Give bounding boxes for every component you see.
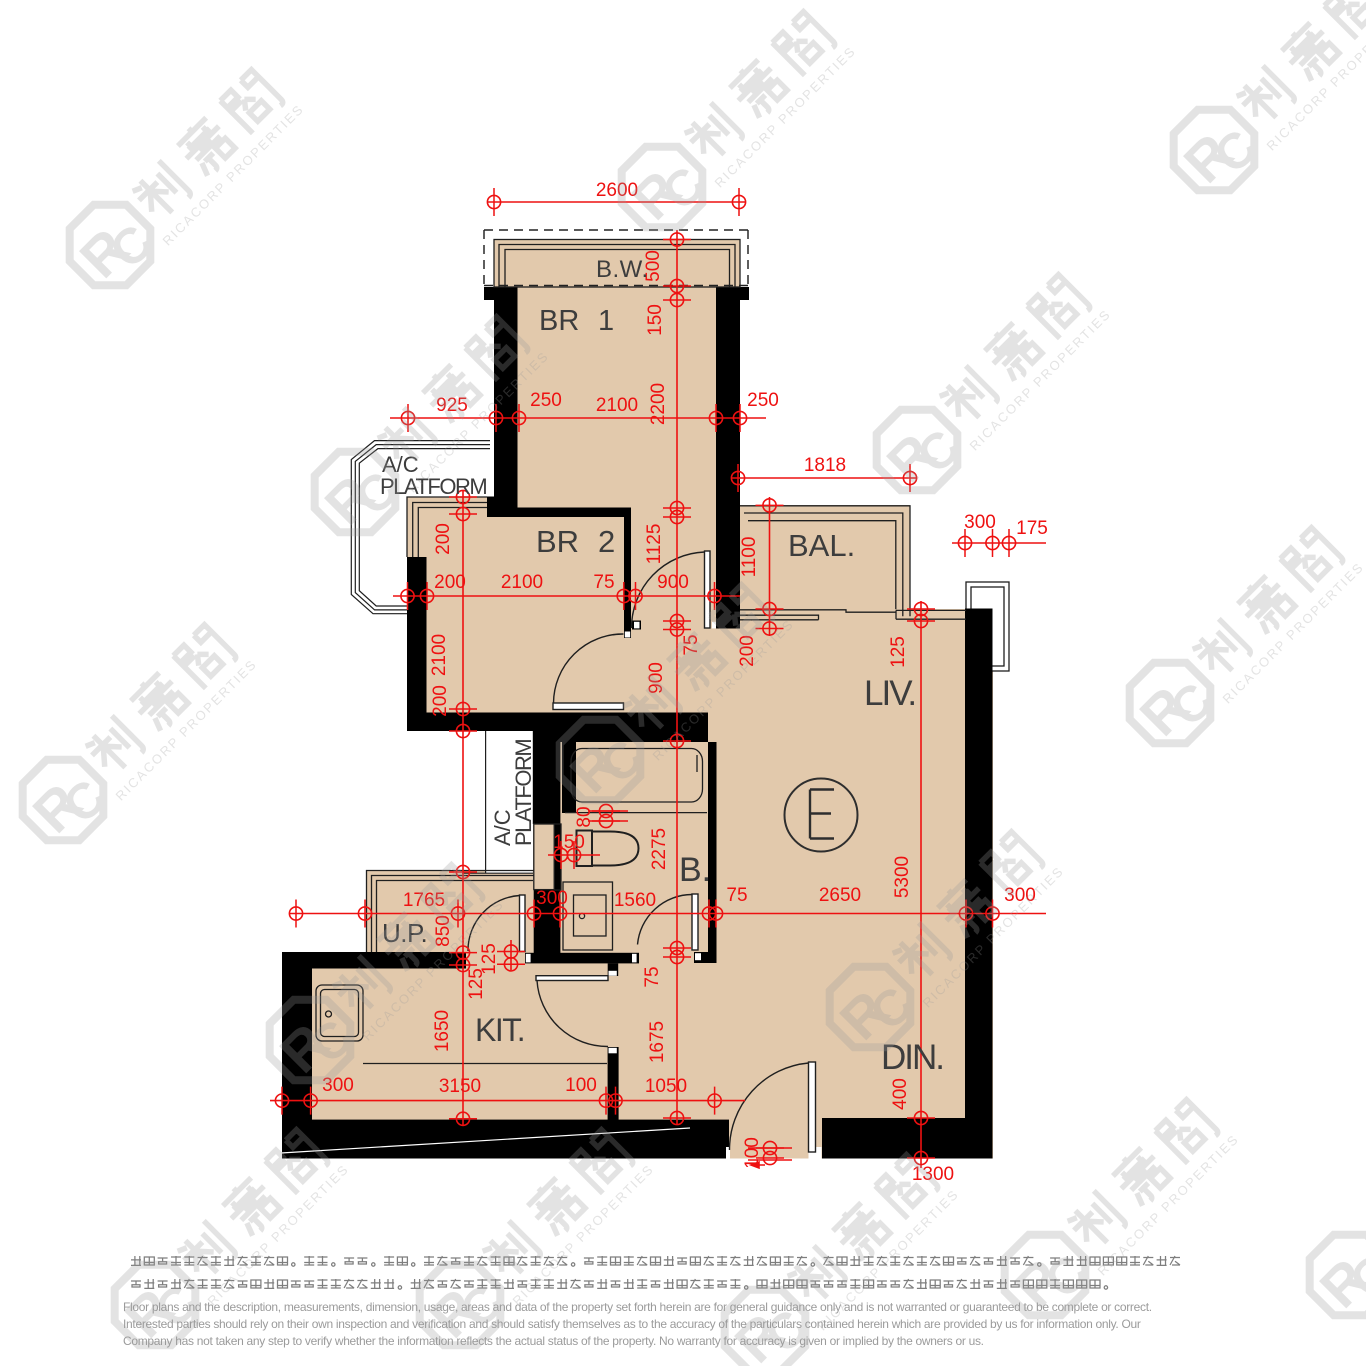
svg-text:1675: 1675 — [647, 1021, 668, 1063]
svg-text:Company has not taken any step: Company has not taken any step to verify… — [123, 1334, 984, 1348]
svg-text:200: 200 — [430, 685, 451, 717]
svg-text:BR: BR — [536, 524, 579, 559]
svg-text:300: 300 — [536, 888, 568, 909]
svg-text:PLATFORM: PLATFORM — [511, 740, 536, 846]
svg-text:2100: 2100 — [596, 395, 638, 416]
svg-text:200: 200 — [434, 572, 466, 593]
svg-text:LIV.: LIV. — [864, 674, 915, 713]
svg-text:125: 125 — [888, 636, 909, 668]
svg-text:2100: 2100 — [501, 572, 543, 593]
svg-text:100: 100 — [742, 1137, 763, 1169]
svg-text:75: 75 — [593, 572, 614, 593]
svg-text:75: 75 — [726, 885, 747, 906]
svg-text:KIT.: KIT. — [475, 1012, 524, 1048]
svg-text:150: 150 — [645, 304, 666, 336]
svg-text:1560: 1560 — [614, 890, 656, 911]
svg-text:1818: 1818 — [804, 455, 846, 476]
svg-text:1125: 1125 — [644, 524, 665, 565]
svg-text:250: 250 — [747, 390, 779, 411]
svg-text:80: 80 — [574, 806, 595, 827]
svg-text:2: 2 — [598, 524, 615, 559]
svg-text:2100: 2100 — [429, 634, 450, 676]
svg-text:B.W.: B.W. — [596, 256, 649, 283]
svg-text:100: 100 — [565, 1075, 597, 1096]
svg-text:1100: 1100 — [739, 537, 760, 578]
svg-text:900: 900 — [657, 572, 689, 593]
svg-text:1050: 1050 — [645, 1076, 687, 1097]
svg-text:1650: 1650 — [432, 1010, 453, 1052]
svg-text:300: 300 — [964, 512, 996, 533]
svg-text:75: 75 — [642, 966, 663, 987]
svg-text:200: 200 — [433, 523, 454, 555]
svg-text:2650: 2650 — [819, 885, 861, 906]
svg-text:Interested parties should rely: Interested parties should rely on their … — [123, 1317, 1141, 1331]
svg-text:400: 400 — [890, 1078, 911, 1110]
svg-text:250: 250 — [530, 390, 562, 411]
svg-text:3150: 3150 — [439, 1076, 481, 1097]
svg-text:2275: 2275 — [649, 828, 670, 870]
svg-text:BAL.: BAL. — [788, 528, 855, 563]
svg-text:Floor plans and the descriptio: Floor plans and the description, measure… — [123, 1300, 1152, 1314]
svg-text:5300: 5300 — [892, 856, 913, 898]
svg-text:175: 175 — [1016, 518, 1048, 539]
svg-text:1: 1 — [598, 305, 614, 337]
svg-text:150: 150 — [553, 832, 585, 853]
svg-text:BR: BR — [539, 305, 579, 337]
svg-text:B.: B. — [679, 851, 711, 889]
svg-text:125: 125 — [466, 968, 487, 1000]
svg-text:2200: 2200 — [648, 383, 669, 425]
